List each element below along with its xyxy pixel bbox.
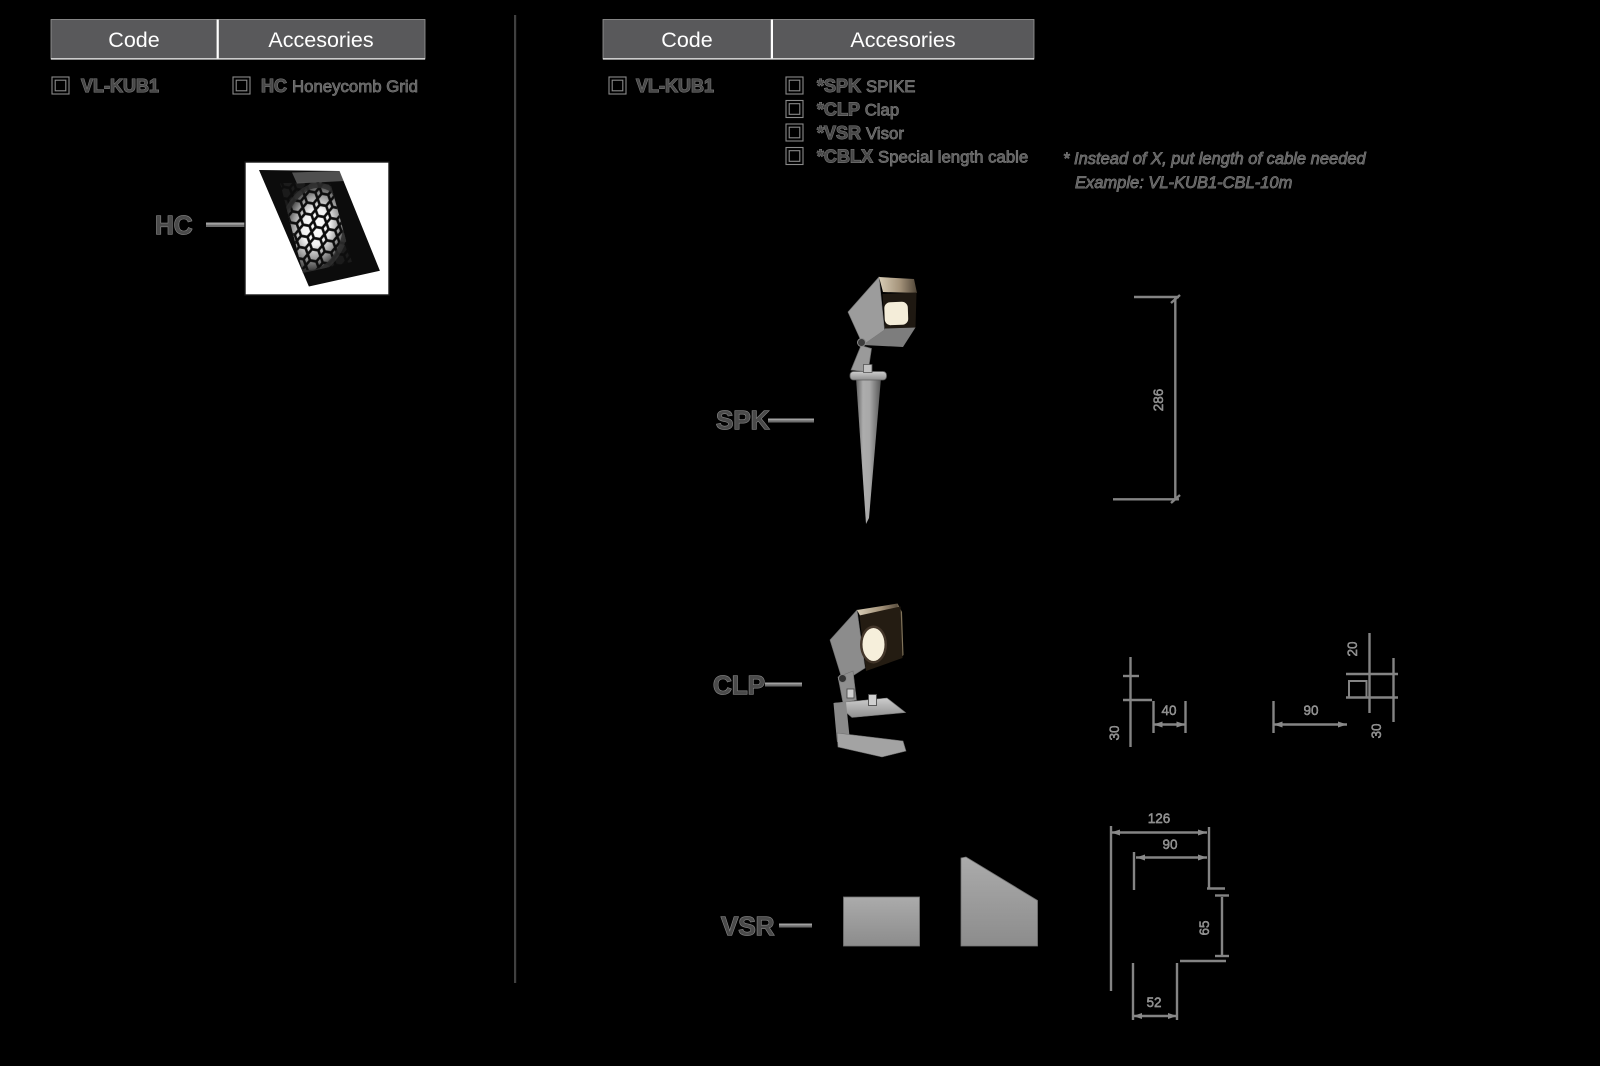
svg-text:CLP: CLP <box>713 670 765 700</box>
svg-text:126: 126 <box>1148 811 1171 826</box>
svg-text:65: 65 <box>1197 920 1212 935</box>
svg-text:90: 90 <box>1303 703 1318 718</box>
svg-text:*SPK SPIKE: *SPK SPIKE <box>817 76 915 96</box>
svg-text:30: 30 <box>1107 725 1122 740</box>
svg-text:VSR: VSR <box>721 911 775 941</box>
svg-text:* Instead of X, put length of: * Instead of X, put length of cable need… <box>1063 150 1367 168</box>
svg-text:Code: Code <box>661 28 712 52</box>
svg-text:HC Honeycomb Grid: HC Honeycomb Grid <box>261 76 418 96</box>
svg-text:*VSR Visor: *VSR Visor <box>817 123 904 143</box>
svg-text:HC: HC <box>155 210 193 240</box>
svg-text:286: 286 <box>1151 389 1166 412</box>
svg-text:SPK: SPK <box>716 405 770 435</box>
svg-text:40: 40 <box>1161 703 1176 718</box>
svg-text:VL-KUB1: VL-KUB1 <box>636 76 714 96</box>
svg-text:Accesories: Accesories <box>268 28 373 52</box>
svg-text:Code: Code <box>108 28 159 52</box>
svg-text:90: 90 <box>1162 837 1177 852</box>
svg-text:52: 52 <box>1146 995 1161 1010</box>
svg-text:*CLP Clap: *CLP Clap <box>817 100 899 120</box>
svg-text:Accesories: Accesories <box>850 28 955 52</box>
svg-text:Example: VL-KUB1-CBL-10m: Example: VL-KUB1-CBL-10m <box>1075 174 1292 192</box>
svg-text:*CBLX Special length cable: *CBLX Special length cable <box>817 147 1028 167</box>
svg-text:20: 20 <box>1345 641 1360 656</box>
svg-text:30: 30 <box>1369 723 1384 738</box>
svg-text:VL-KUB1: VL-KUB1 <box>81 76 159 96</box>
